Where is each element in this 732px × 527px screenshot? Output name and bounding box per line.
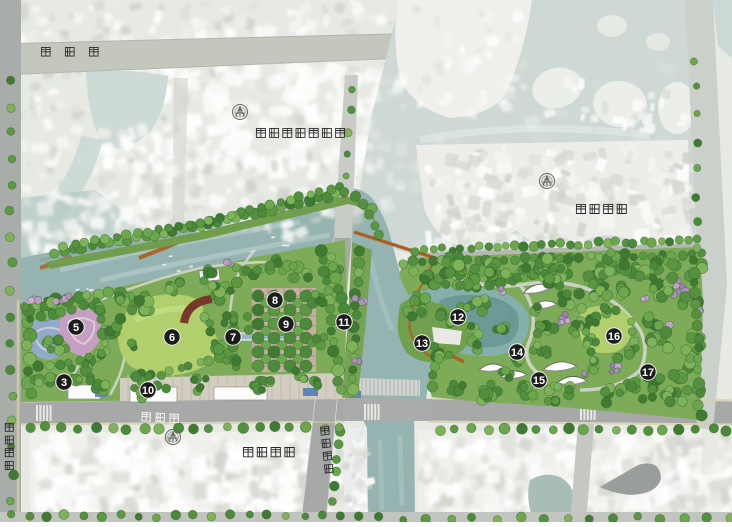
svg-text:14: 14 <box>511 347 524 359</box>
svg-text:11: 11 <box>338 317 350 329</box>
svg-text:16: 16 <box>608 331 620 343</box>
svg-text:17: 17 <box>642 367 654 379</box>
svg-text:7: 7 <box>230 332 236 344</box>
svg-text:13: 13 <box>416 338 428 350</box>
svg-text:12: 12 <box>452 312 464 324</box>
svg-text:8: 8 <box>272 295 278 307</box>
svg-text:9: 9 <box>283 319 289 331</box>
svg-text:5: 5 <box>73 322 79 334</box>
svg-text:10: 10 <box>142 385 154 397</box>
svg-text:3: 3 <box>61 377 67 389</box>
svg-text:6: 6 <box>169 332 175 344</box>
svg-text:15: 15 <box>533 375 545 387</box>
